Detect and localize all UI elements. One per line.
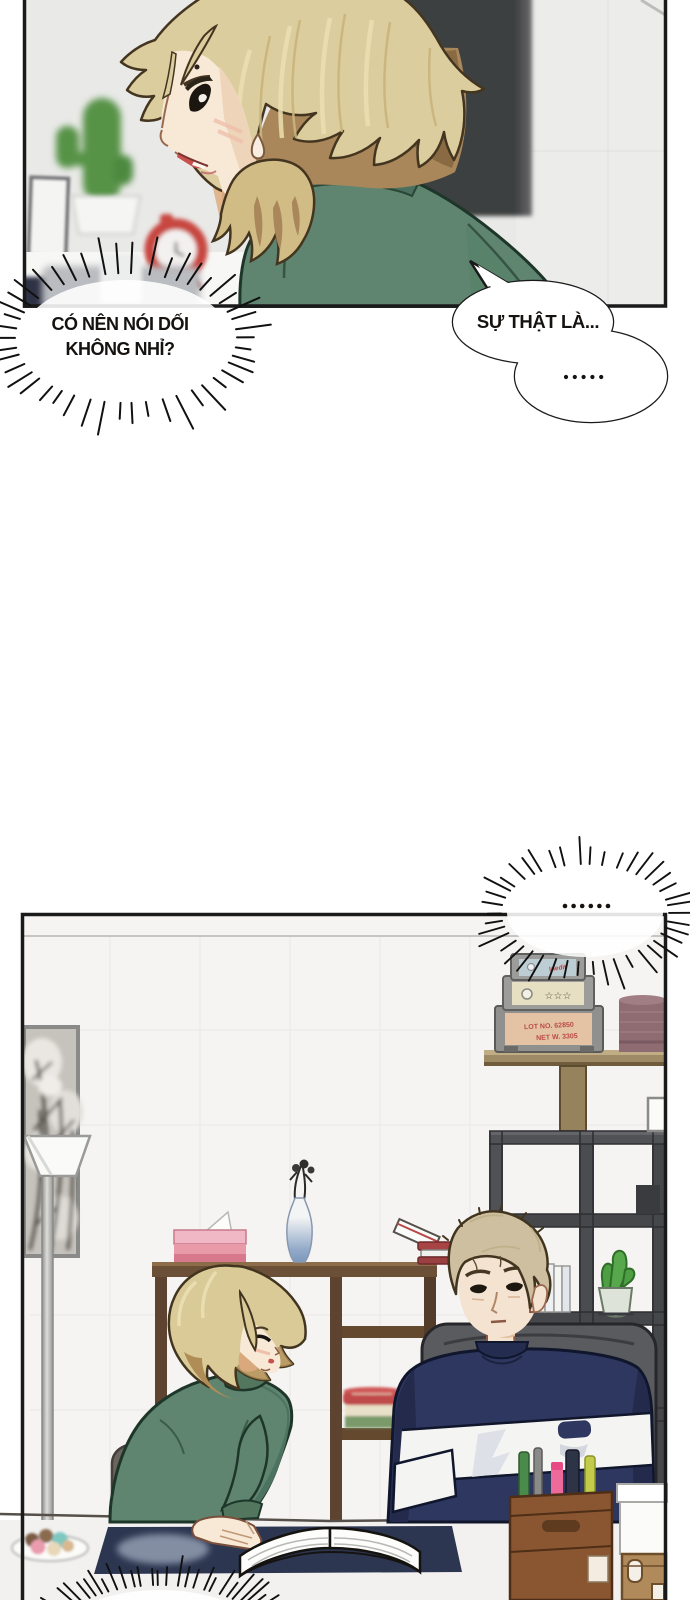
svg-text:KHÔNG NHỈ?: KHÔNG NHỈ? [66,338,175,359]
svg-text:☆☆☆: ☆☆☆ [545,991,572,1002]
svg-text:SỰ THẬT LÀ...: SỰ THẬT LÀ... [477,311,599,332]
svg-text:CÓ NÊN NÓI DỐI: CÓ NÊN NÓI DỐI [51,313,188,334]
